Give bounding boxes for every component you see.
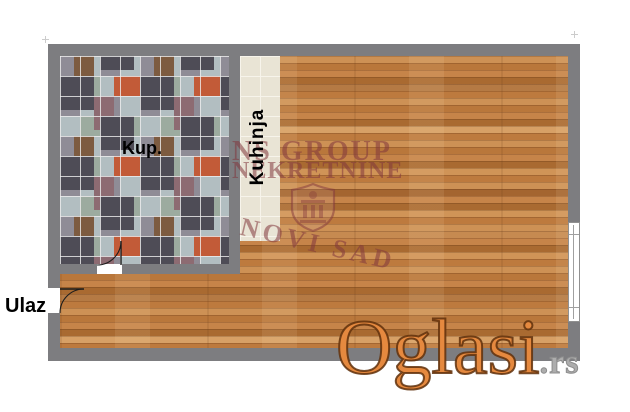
- window-sash-bottom: [569, 307, 579, 308]
- room-label-entrance: Ulaz: [5, 295, 51, 318]
- wall-bathroom-right: [229, 56, 240, 274]
- window: [568, 222, 580, 322]
- site-logo: Oglasi.rs: [336, 312, 579, 382]
- bathroom-door-arc-icon: [96, 238, 124, 266]
- floorplan-image: NS GROUP NEKRETNINE NOVI SAD Kup. Kuhinj…: [0, 0, 630, 412]
- room-label-kitchen: Kuhinja: [247, 97, 269, 197]
- site-logo-brand: Oglasi: [336, 303, 540, 390]
- window-sash-top: [569, 234, 579, 235]
- window-pane-line: [573, 225, 574, 319]
- site-logo-tld: .rs: [540, 344, 580, 381]
- wall-bathroom-bottom: [60, 264, 240, 274]
- corner-mark: [571, 31, 578, 38]
- corner-mark: [42, 36, 49, 43]
- bathroom-tiles: [60, 56, 229, 264]
- room-label-bathroom: Kup.: [112, 138, 172, 159]
- entrance-door-arc-icon: [58, 287, 86, 315]
